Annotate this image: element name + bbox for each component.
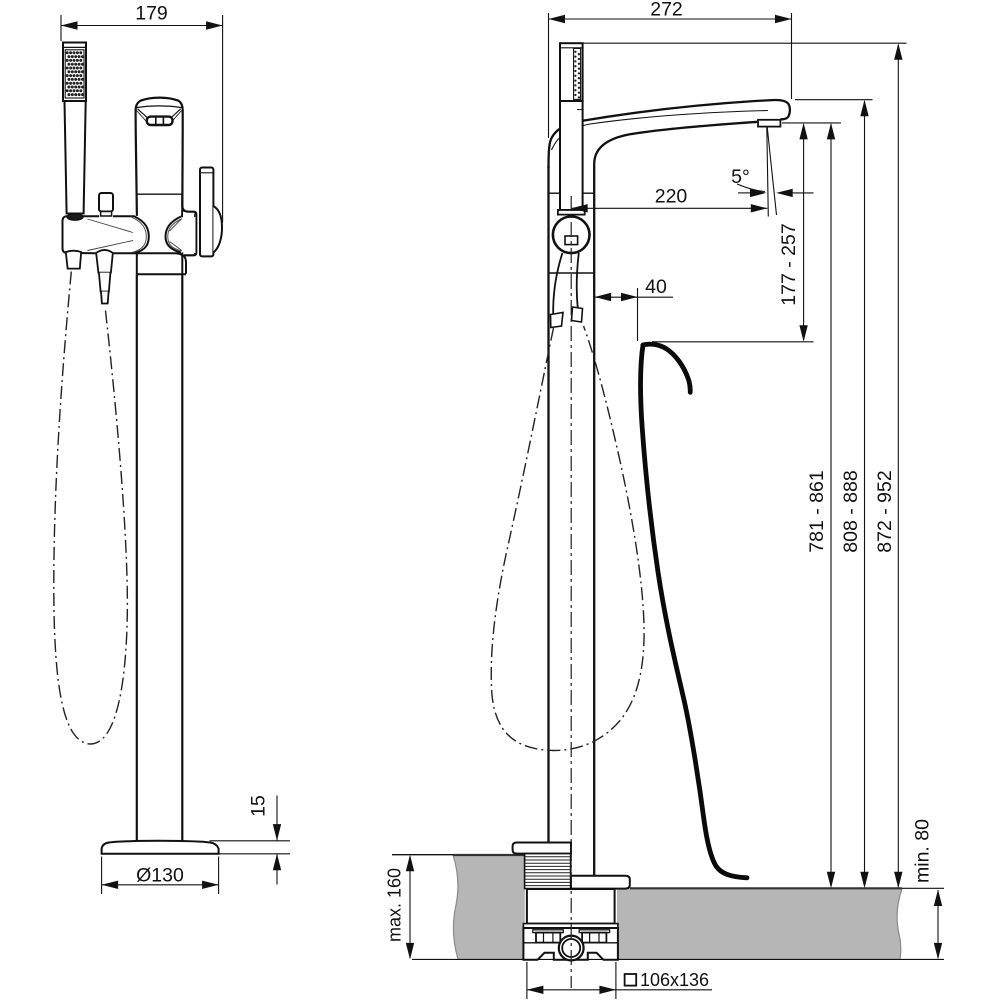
svg-text:40: 40 [645,276,667,298]
svg-text:min. 80: min. 80 [912,819,934,883]
svg-text:179: 179 [135,3,168,25]
svg-text:max. 160: max. 160 [385,868,405,942]
svg-text:220: 220 [655,185,688,207]
svg-text:Ø130: Ø130 [136,865,184,887]
svg-text:272: 272 [650,0,683,21]
svg-text:106x136: 106x136 [640,970,709,990]
svg-text:15: 15 [248,795,270,817]
svg-text:872 - 952: 872 - 952 [874,470,896,552]
svg-text:808 - 888: 808 - 888 [840,470,862,552]
svg-text:781 - 861: 781 - 861 [806,470,828,552]
svg-text:177 - 257: 177 - 257 [778,223,800,305]
svg-text:5°: 5° [731,166,750,188]
